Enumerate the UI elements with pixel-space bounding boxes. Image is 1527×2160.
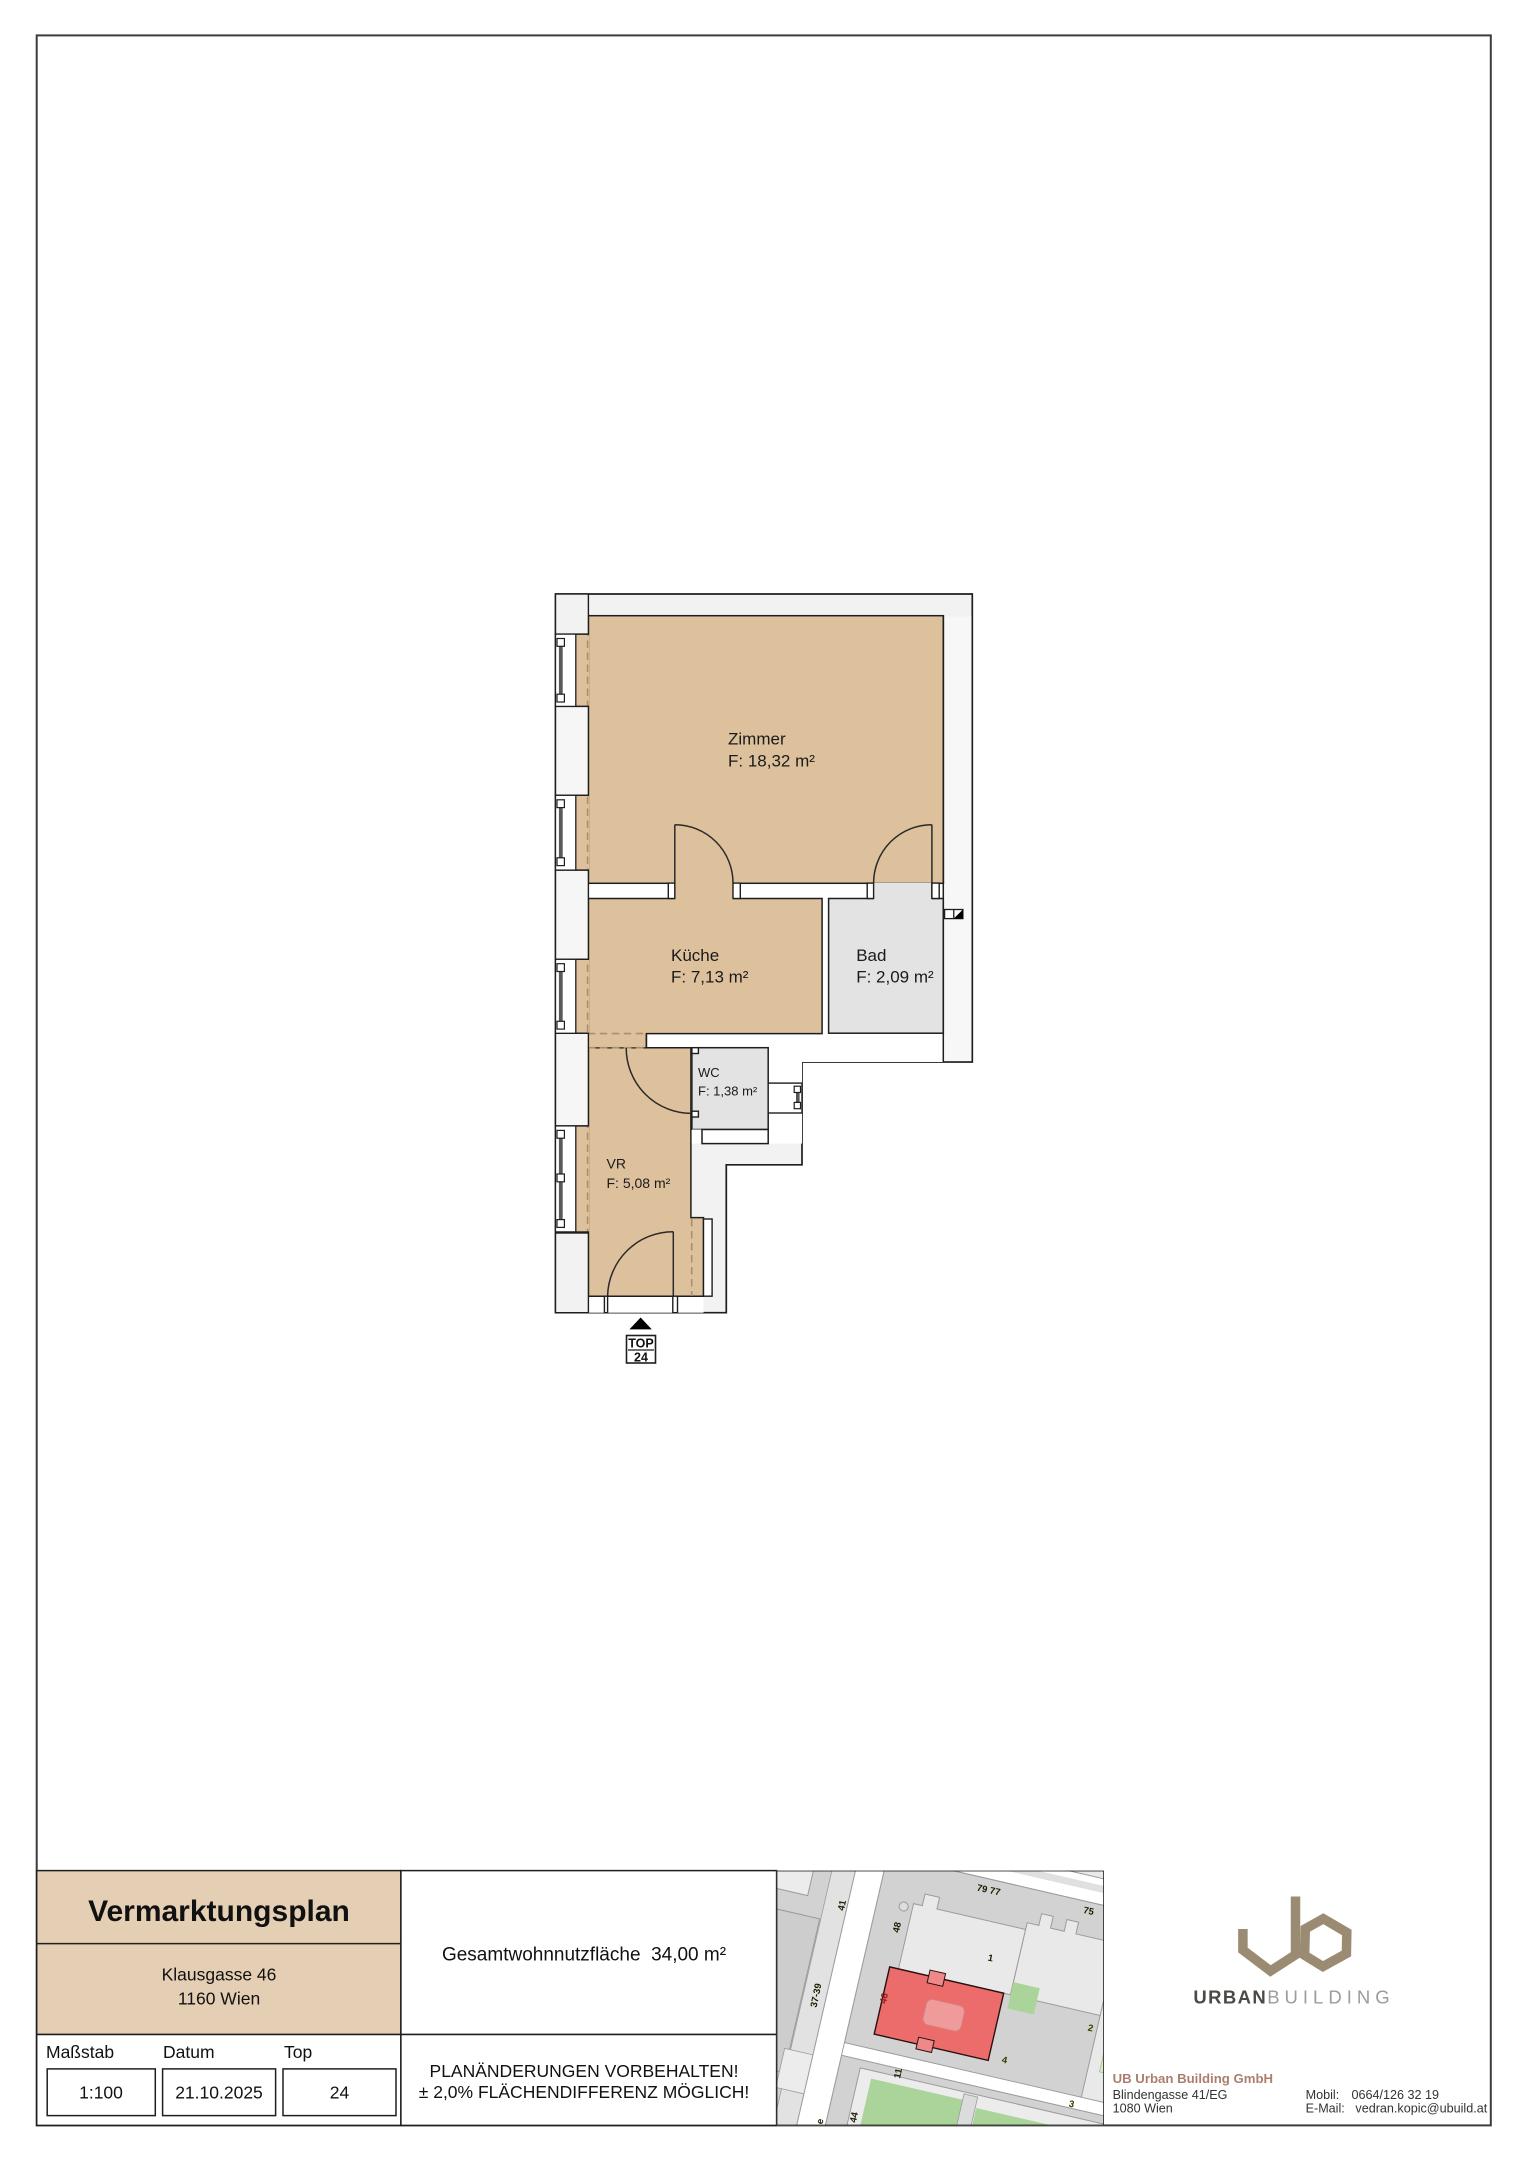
svg-text:Vermarktungsplan: Vermarktungsplan: [88, 1895, 350, 1928]
svg-text:Küche: Küche: [671, 946, 719, 965]
svg-text:F: 7,13 m²: F: 7,13 m²: [671, 968, 749, 987]
svg-text:1080 Wien: 1080 Wien: [1113, 2101, 1173, 2115]
svg-text:F: 2,09 m²: F: 2,09 m²: [856, 968, 934, 987]
svg-text:Maßstab: Maßstab: [46, 2042, 114, 2062]
svg-text:UB Urban Building GmbH: UB Urban Building GmbH: [1113, 2071, 1273, 2086]
svg-text:F: 18,32 m²: F: 18,32 m²: [728, 751, 815, 770]
svg-text:Klausgasse 46: Klausgasse 46: [162, 1965, 277, 1985]
svg-text:1:100: 1:100: [79, 2083, 123, 2103]
svg-text:TOP: TOP: [628, 1337, 653, 1351]
svg-text:Mobil:: Mobil:: [1306, 2088, 1340, 2102]
svg-text:48: 48: [891, 1921, 904, 1934]
svg-text:WC: WC: [698, 1065, 720, 1080]
svg-text:0664/126 32 19: 0664/126 32 19: [1352, 2088, 1440, 2102]
svg-text:46: 46: [878, 1992, 891, 2005]
svg-text:Datum: Datum: [163, 2042, 215, 2062]
svg-text:PLANÄNDERUNGEN VORBEHALTEN!: PLANÄNDERUNGEN VORBEHALTEN!: [430, 2061, 739, 2081]
svg-text:Gesamtwohnnutzfläche 34,00 m²: Gesamtwohnnutzfläche 34,00 m²: [442, 1945, 726, 1966]
svg-text:24: 24: [634, 1351, 648, 1365]
svg-text:24: 24: [330, 2083, 350, 2103]
svg-text:E-Mail:: E-Mail:: [1306, 2101, 1345, 2115]
svg-text:Blindengasse 41/EG: Blindengasse 41/EG: [1113, 2088, 1228, 2102]
svg-text:Bad: Bad: [856, 946, 886, 965]
svg-text:F: 1,38 m²: F: 1,38 m²: [698, 1084, 758, 1099]
svg-text:F: 5,08 m²: F: 5,08 m²: [607, 1175, 671, 1191]
svg-text:± 2,0% FLÄCHENDIFFERENZ MÖGLIC: ± 2,0% FLÄCHENDIFFERENZ MÖGLICH!: [419, 2082, 749, 2102]
svg-text:21.10.2025: 21.10.2025: [175, 2083, 263, 2103]
svg-text:1160 Wien: 1160 Wien: [178, 1989, 260, 2009]
svg-text:URBANBUILDING: URBANBUILDING: [1193, 1987, 1394, 2008]
svg-text:Zimmer: Zimmer: [728, 730, 786, 749]
svg-text:VR: VR: [607, 1156, 626, 1172]
svg-text:Top: Top: [284, 2042, 312, 2062]
svg-text:vedran.kopic@ubuild.at: vedran.kopic@ubuild.at: [1355, 2101, 1487, 2115]
